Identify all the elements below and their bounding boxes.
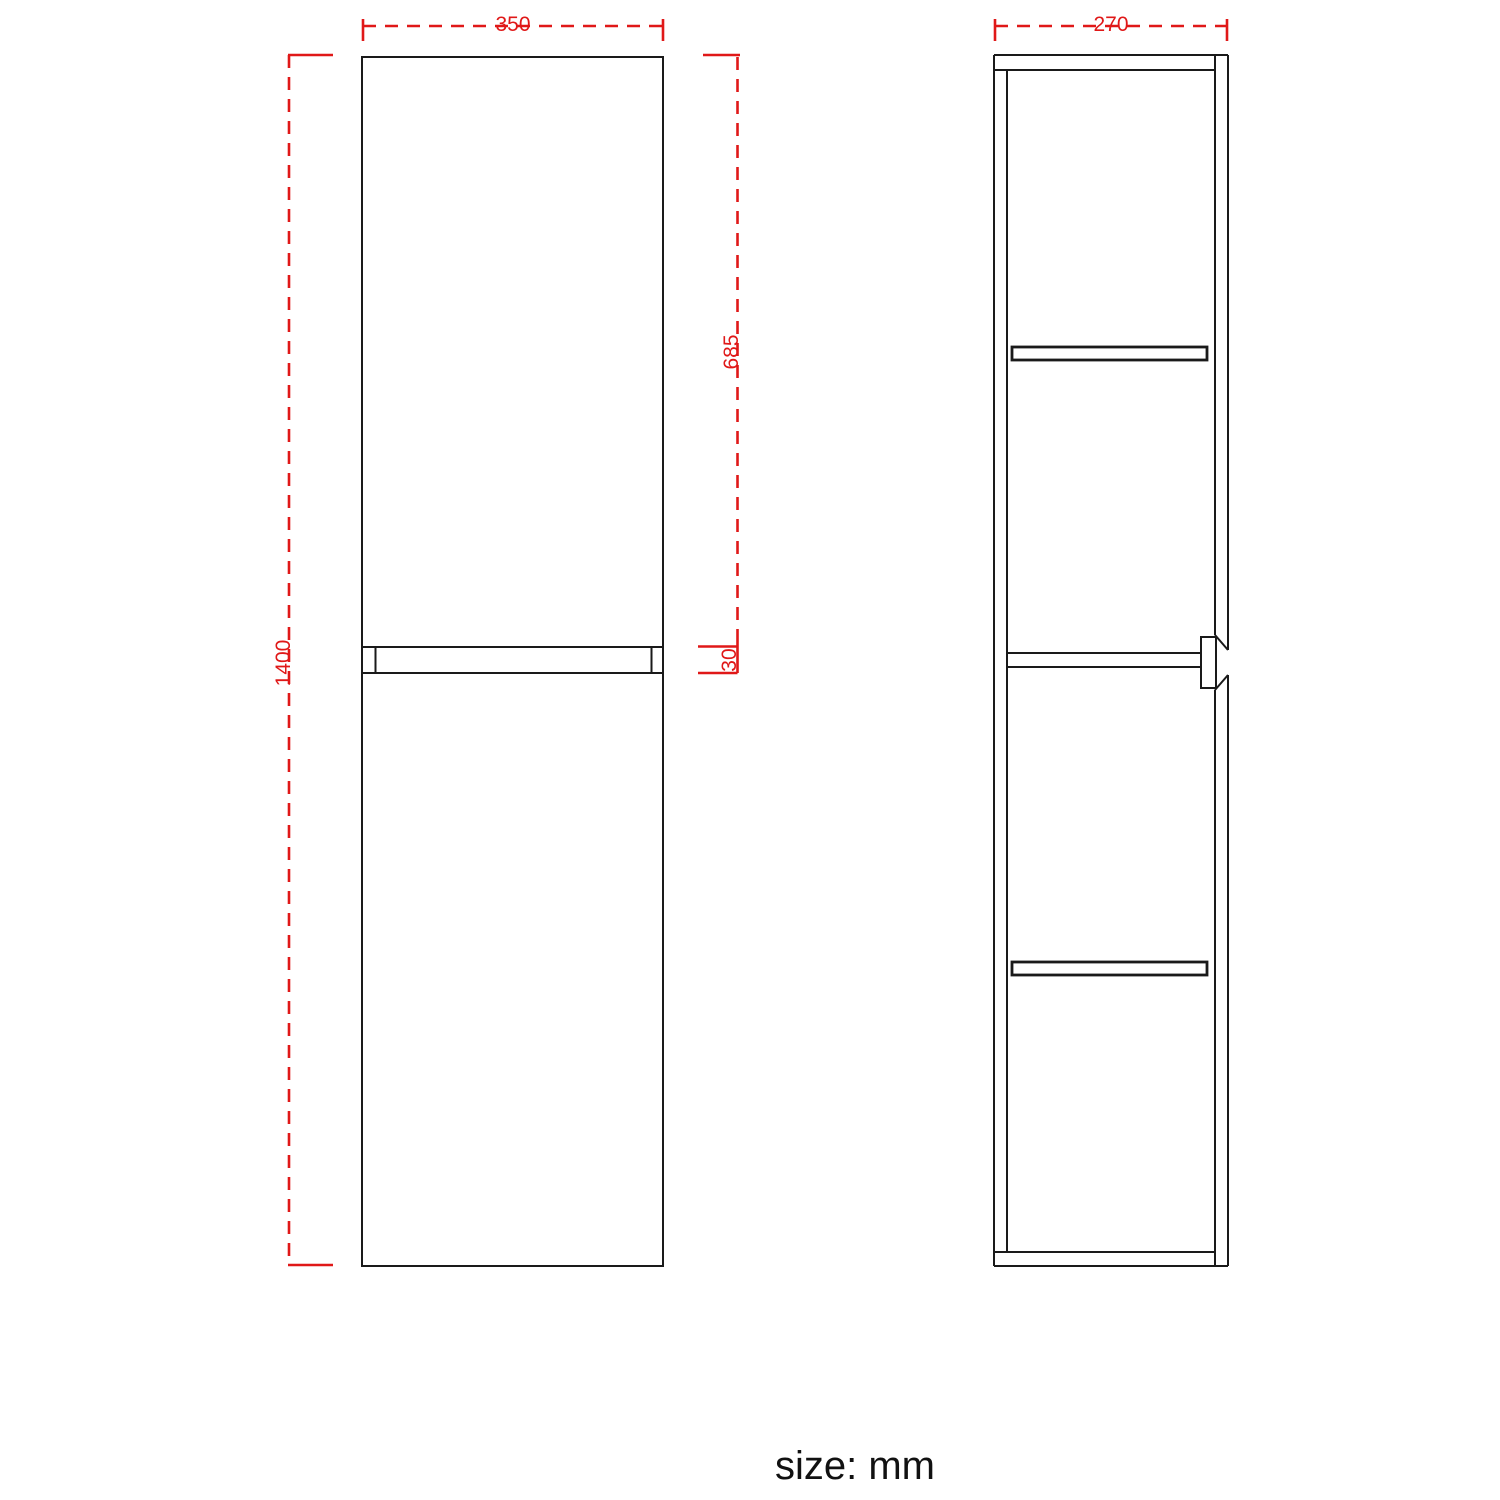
side-view <box>994 55 1228 1266</box>
side-lower-shelf <box>1012 962 1207 975</box>
dim-depth-label: 270 <box>1093 13 1128 36</box>
side-upper-shelf <box>1012 347 1207 360</box>
dimension-divider-gap: 30 <box>698 630 741 673</box>
dimension-upper-door-height: 685 <box>703 55 743 630</box>
dimension-side-depth: 270 <box>995 13 1227 41</box>
dim-width-label: 350 <box>495 13 530 36</box>
dimension-front-width: 350 <box>363 13 663 41</box>
unit-note: size: mm <box>775 1444 935 1488</box>
technical-drawing-canvas: 350 270 1400 685 30 <box>0 0 1500 1500</box>
side-middle-panel-front-rail <box>1201 637 1216 688</box>
front-view <box>362 57 663 1266</box>
dim-gap-label: 30 <box>718 648 741 671</box>
dimension-overall-height: 1400 <box>272 55 333 1265</box>
cabinet-dimension-drawing: 350 270 1400 685 30 <box>0 0 1500 1500</box>
dim-door-label: 685 <box>720 334 743 369</box>
dim-height-label: 1400 <box>272 640 295 687</box>
front-view-outline <box>362 57 663 1266</box>
